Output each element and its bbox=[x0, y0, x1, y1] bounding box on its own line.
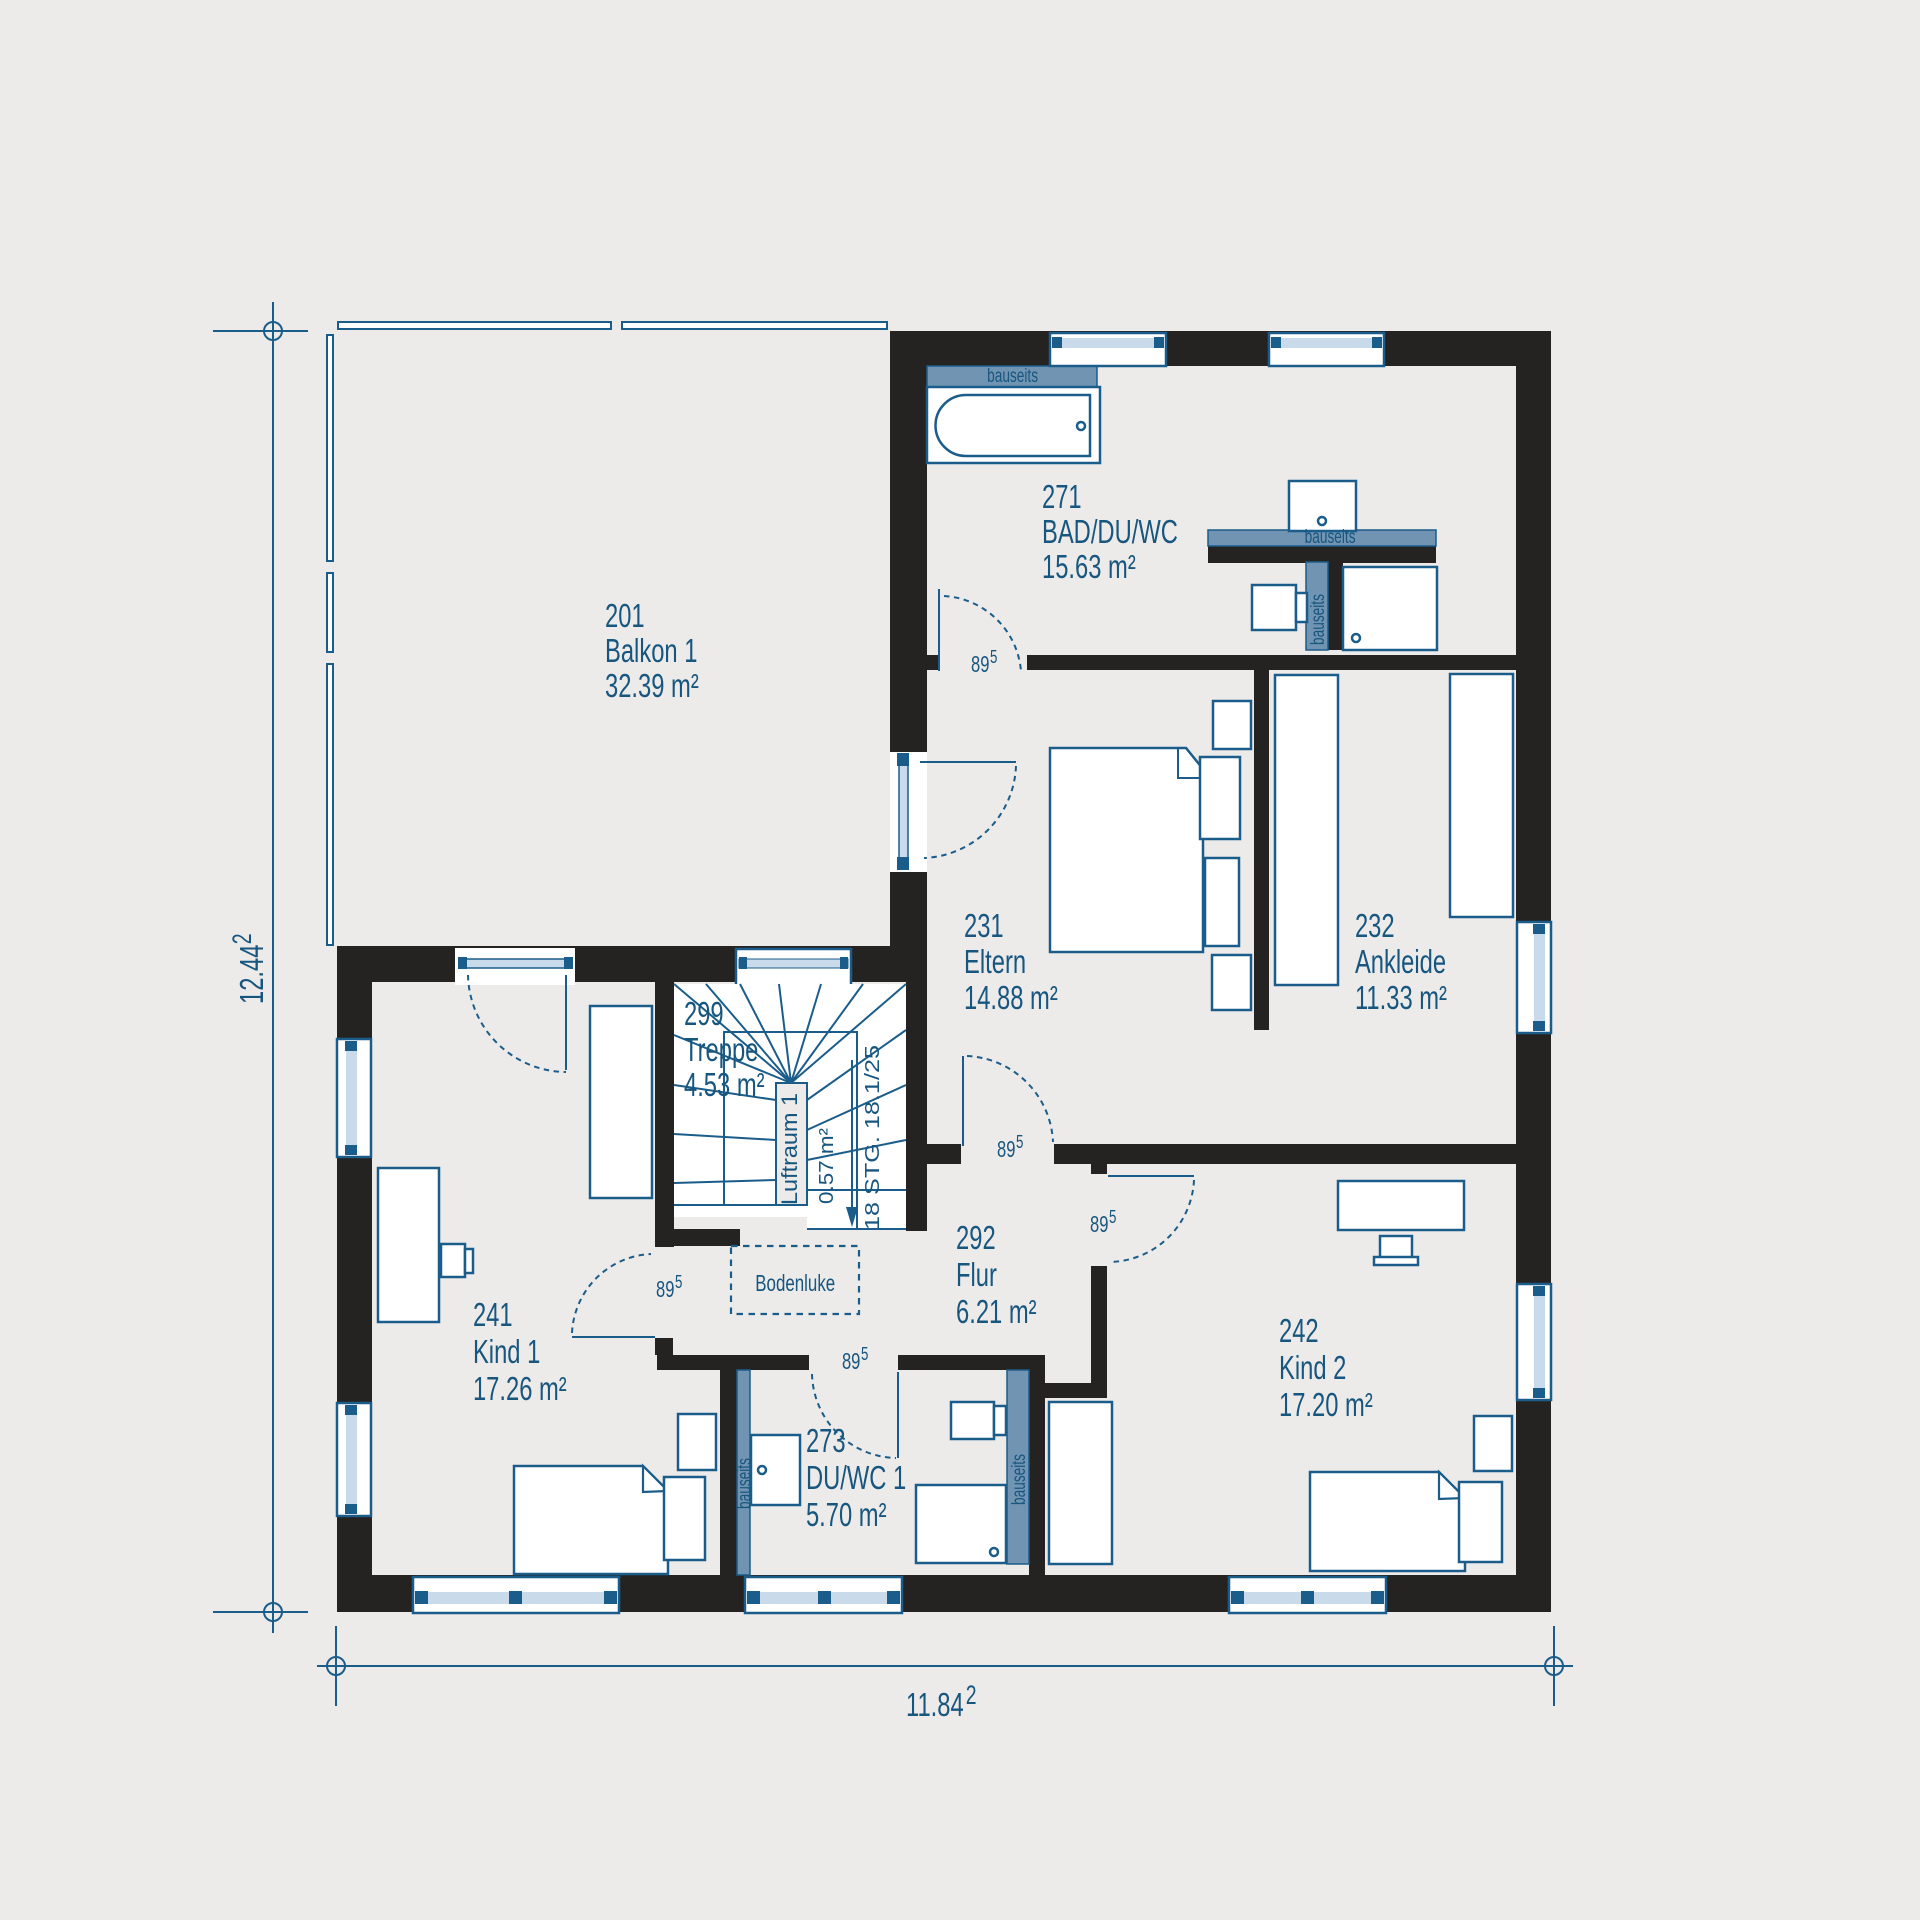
svg-text:bauseits: bauseits bbox=[1307, 594, 1329, 645]
svg-text:0.57 m²: 0.57 m² bbox=[816, 1128, 838, 1204]
svg-text:5: 5 bbox=[1109, 1207, 1116, 1228]
svg-text:32.39 m²: 32.39 m² bbox=[605, 668, 699, 705]
svg-text:bauseits: bauseits bbox=[733, 1458, 755, 1509]
svg-text:15.63 m²: 15.63 m² bbox=[1042, 549, 1136, 586]
svg-text:bauseits: bauseits bbox=[987, 365, 1038, 387]
svg-text:17.26 m²: 17.26 m² bbox=[473, 1371, 567, 1408]
svg-text:232: 232 bbox=[1355, 908, 1395, 945]
svg-text:89: 89 bbox=[1090, 1212, 1108, 1237]
svg-text:6.21 m²: 6.21 m² bbox=[956, 1294, 1037, 1331]
svg-text:241: 241 bbox=[473, 1297, 513, 1334]
svg-text:18 STG. 18.1/25: 18 STG. 18.1/25 bbox=[862, 1045, 884, 1230]
svg-text:2: 2 bbox=[966, 1680, 977, 1710]
svg-text:Ankleide: Ankleide bbox=[1355, 944, 1446, 981]
svg-text:201: 201 bbox=[605, 598, 645, 635]
svg-text:2: 2 bbox=[227, 933, 257, 944]
svg-text:11.84: 11.84 bbox=[906, 1687, 964, 1724]
svg-text:Kind 1: Kind 1 bbox=[473, 1334, 540, 1371]
svg-text:bauseits: bauseits bbox=[1008, 1454, 1030, 1505]
svg-text:17.20 m²: 17.20 m² bbox=[1279, 1387, 1373, 1424]
svg-text:Balkon 1: Balkon 1 bbox=[605, 633, 697, 670]
svg-text:5: 5 bbox=[675, 1272, 682, 1293]
svg-text:89: 89 bbox=[997, 1137, 1015, 1162]
svg-text:5.70 m²: 5.70 m² bbox=[806, 1497, 887, 1534]
svg-text:DU/WC 1: DU/WC 1 bbox=[806, 1460, 906, 1497]
svg-text:Kind 2: Kind 2 bbox=[1279, 1350, 1346, 1387]
svg-text:299: 299 bbox=[684, 996, 724, 1033]
svg-text:89: 89 bbox=[842, 1349, 860, 1374]
svg-text:89: 89 bbox=[971, 652, 989, 677]
svg-text:Bodenluke: Bodenluke bbox=[755, 1270, 835, 1296]
svg-text:11.33 m²: 11.33 m² bbox=[1355, 980, 1447, 1017]
svg-text:BAD/DU/WC: BAD/DU/WC bbox=[1042, 514, 1178, 551]
svg-text:5: 5 bbox=[861, 1344, 868, 1365]
svg-text:Flur: Flur bbox=[956, 1257, 997, 1294]
svg-text:Luftraum 1: Luftraum 1 bbox=[777, 1093, 802, 1205]
svg-text:Eltern: Eltern bbox=[964, 944, 1026, 981]
svg-text:14.88 m²: 14.88 m² bbox=[964, 980, 1058, 1017]
svg-text:292: 292 bbox=[956, 1220, 996, 1257]
svg-text:89: 89 bbox=[656, 1277, 674, 1302]
svg-text:12.44: 12.44 bbox=[234, 945, 271, 1004]
svg-text:Treppe: Treppe bbox=[684, 1032, 758, 1069]
svg-text:242: 242 bbox=[1279, 1313, 1319, 1350]
svg-text:bauseits: bauseits bbox=[1305, 526, 1356, 548]
svg-text:5: 5 bbox=[1016, 1132, 1023, 1153]
svg-text:271: 271 bbox=[1042, 479, 1082, 516]
svg-text:273: 273 bbox=[806, 1423, 846, 1460]
svg-text:231: 231 bbox=[964, 908, 1004, 945]
svg-text:4.53 m²: 4.53 m² bbox=[684, 1067, 765, 1104]
svg-text:5: 5 bbox=[990, 647, 997, 668]
